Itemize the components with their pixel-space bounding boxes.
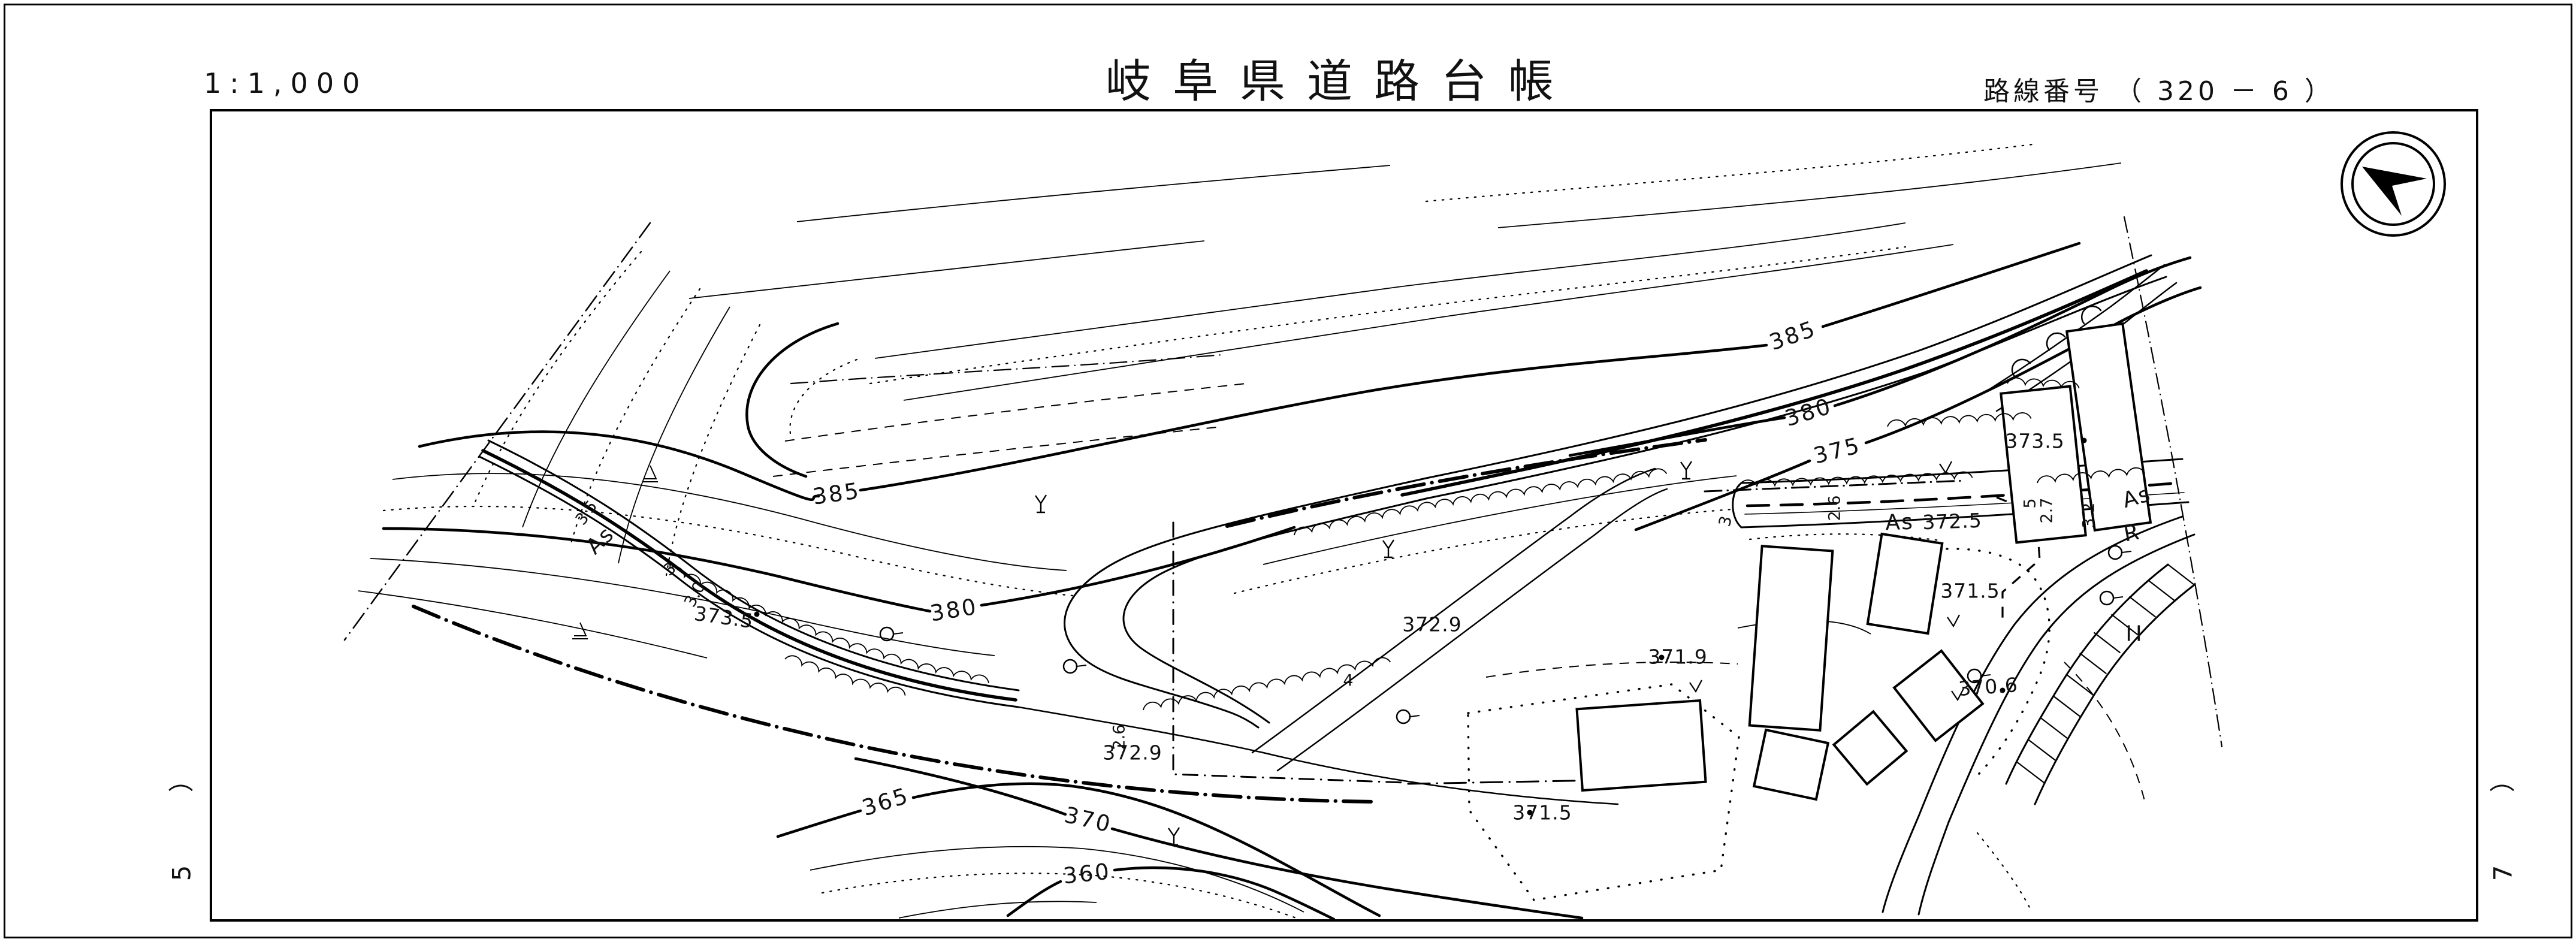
- wall-tick: [2053, 696, 2080, 717]
- pole-icon: [1397, 710, 1420, 723]
- spot-elevation-label: 371.5: [1940, 579, 2000, 603]
- building: [1834, 711, 1906, 784]
- right-sheet-join-label: － 7 ）: [2483, 735, 2520, 942]
- sheet-title: 岐阜県道路台帳: [1106, 44, 1575, 110]
- field-mark-label: II: [2125, 622, 2145, 647]
- pole-icon: [2100, 591, 2123, 605]
- survey-point-icon: [572, 623, 588, 639]
- grass-mark-icon: [1690, 680, 1702, 692]
- wall-tick: [2028, 739, 2056, 760]
- wall-tick: [2094, 632, 2120, 653]
- vegetation-icon: [1168, 828, 1179, 845]
- left-sheet-join-label: － 5 ）: [162, 735, 198, 942]
- wall-tick: [2168, 564, 2194, 585]
- roads: [479, 255, 2194, 914]
- road-edge-bold: [483, 451, 1016, 700]
- spot-elevation-label: 372.9: [1402, 613, 1461, 636]
- vegetation-icon: [1035, 495, 1046, 512]
- route-number: 路線番号 （ 320 － 6 ）: [1983, 70, 2335, 108]
- grass-mark-icon: [1940, 461, 1952, 473]
- hairpin-inner: [1124, 499, 1426, 723]
- hairpin-outer: [1065, 478, 1426, 727]
- wall-tick: [2067, 675, 2094, 696]
- spot-elevation-label: 370.6: [1958, 673, 2019, 701]
- map-scale: 1:1,000: [204, 67, 368, 99]
- spot-elevation-label: 371.9: [1648, 645, 1707, 669]
- contour-elevation-label: 360: [1062, 858, 1112, 889]
- spot-elevation-label: 373.5: [2005, 430, 2064, 453]
- building: [1754, 730, 1828, 799]
- spot-elevation-label: 372.5: [1922, 509, 1983, 534]
- retaining-wall-edge: [2006, 564, 2168, 784]
- vegetation-icon: [1383, 540, 1394, 557]
- wall-tick: [2149, 581, 2175, 601]
- road-width-label: 2.7: [2038, 498, 2056, 524]
- road-width-label: 4: [1343, 672, 1353, 690]
- pavement-type-label: As: [1885, 510, 1914, 536]
- dashed-lines: [773, 384, 2145, 803]
- intermediate-contours: [358, 163, 2121, 918]
- retaining-wall-ticks: [2017, 564, 2194, 783]
- map-canvas: 385380385380375370365360373.5372.9372.93…: [0, 0, 2576, 942]
- wall-tick: [2017, 762, 2045, 783]
- pole-icon: [2109, 546, 2131, 559]
- cadastral-boundary-bold: [413, 606, 1378, 802]
- spot-dot-icon: [2082, 438, 2087, 443]
- survey-point-icon: [642, 466, 658, 482]
- building: [1868, 534, 1943, 633]
- vegetation-icon: [1681, 461, 1692, 479]
- spot-dot-icon: [754, 612, 760, 617]
- road-ledger-sheet: 1:1,000 岐阜県道路台帳 路線番号 （ 320 － 6 ） － 5 ） －…: [0, 0, 2576, 942]
- wall-tick: [2040, 717, 2067, 738]
- road-width-label: 5: [2021, 498, 2040, 508]
- spot-elevation-label: 371.5: [1512, 801, 1572, 825]
- grass-mark-icon: [1947, 615, 1959, 626]
- road-width-label: 2.6: [1826, 496, 1844, 521]
- building: [1577, 701, 1706, 790]
- road-width-label: 3.2: [2080, 503, 2098, 529]
- road-width-label: 2.6: [1110, 724, 1129, 750]
- wall-tick: [2129, 597, 2155, 617]
- wall-tick: [2080, 653, 2107, 674]
- left-sheet-boundary: [345, 223, 650, 640]
- building: [1750, 546, 1833, 730]
- map-linework: [0, 0, 2576, 942]
- pole-icon: [1064, 660, 1086, 673]
